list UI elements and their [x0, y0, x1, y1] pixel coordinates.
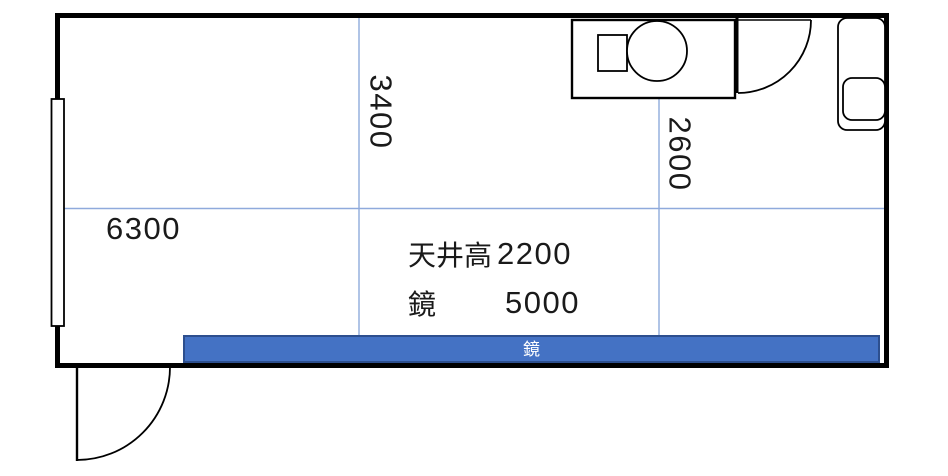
- room-outline: [58, 16, 887, 366]
- ceiling-height-value: 2200: [497, 237, 572, 271]
- mirror-bar-label: 鏡: [523, 341, 540, 358]
- mirror-length-value: 5000: [505, 286, 580, 320]
- toilet-tank: [598, 35, 627, 71]
- dimension-label-depth-right: 2600: [665, 117, 696, 192]
- door-arc: [738, 20, 811, 93]
- window-icon: [52, 99, 65, 326]
- ceiling-height-label: 天井高: [408, 241, 492, 272]
- door-arc: [77, 367, 170, 460]
- door-swing-icon-top: [737, 18, 811, 93]
- toilet-icon: [572, 20, 735, 98]
- mirror-bar: 鏡: [183, 335, 880, 363]
- mirror-length-label: 鏡: [408, 290, 436, 321]
- dimension-label-depth-center: 3400: [366, 75, 397, 150]
- floor-plan: 鏡 6300 3400 2600 天井高 2200 鏡 5000: [0, 0, 948, 476]
- door-swing-icon-bottom: [77, 367, 170, 461]
- sink-basin: [843, 78, 885, 120]
- dimension-label-room-width: 6300: [106, 212, 181, 246]
- sink-cabinet-icon: [838, 18, 885, 130]
- toilet-bowl: [627, 21, 687, 81]
